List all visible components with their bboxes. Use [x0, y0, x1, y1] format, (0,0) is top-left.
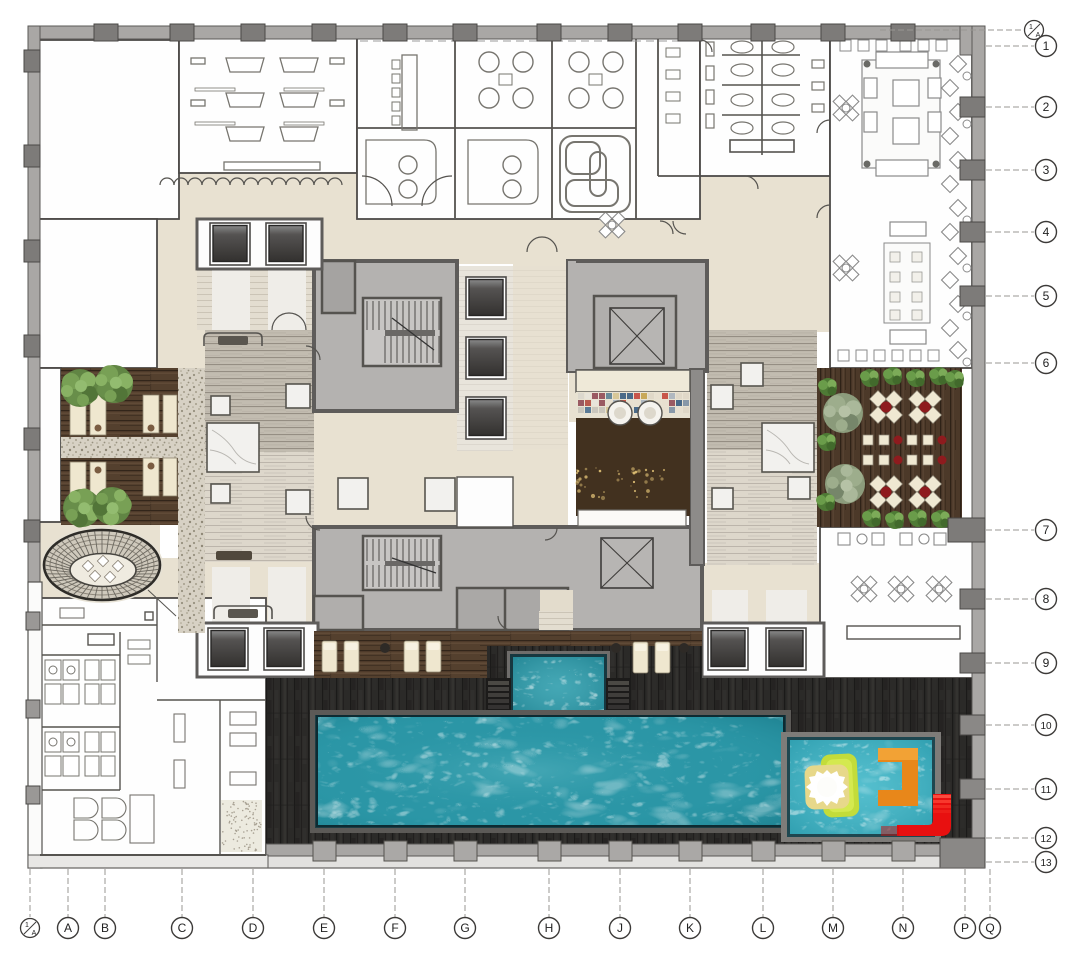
svg-text:1: 1: [1043, 39, 1050, 53]
svg-text:A: A: [32, 930, 37, 937]
svg-text:6: 6: [1043, 356, 1050, 370]
svg-text:A: A: [1036, 32, 1041, 39]
svg-text:10: 10: [1040, 721, 1052, 732]
svg-text:P: P: [961, 921, 969, 935]
svg-text:H: H: [545, 921, 554, 935]
svg-text:G: G: [460, 921, 469, 935]
svg-text:A: A: [64, 921, 72, 935]
svg-text:E: E: [320, 921, 328, 935]
svg-text:F: F: [391, 921, 398, 935]
svg-text:9: 9: [1043, 656, 1050, 670]
svg-text:3: 3: [1043, 163, 1050, 177]
svg-text:Q: Q: [985, 921, 994, 935]
svg-text:5: 5: [1043, 289, 1050, 303]
svg-text:1: 1: [1029, 24, 1033, 31]
svg-text:2: 2: [1043, 100, 1050, 114]
svg-text:7: 7: [1043, 523, 1050, 537]
svg-text:K: K: [686, 921, 694, 935]
svg-text:B: B: [101, 921, 109, 935]
svg-text:M: M: [828, 921, 838, 935]
svg-text:11: 11: [1041, 785, 1052, 796]
svg-text:D: D: [249, 921, 258, 935]
svg-text:8: 8: [1043, 592, 1050, 606]
svg-text:13: 13: [1040, 858, 1052, 869]
svg-text:1: 1: [25, 922, 29, 929]
svg-text:L: L: [760, 921, 767, 935]
svg-text:4: 4: [1043, 225, 1050, 239]
svg-text:J: J: [617, 921, 623, 935]
svg-text:N: N: [899, 921, 908, 935]
svg-text:12: 12: [1040, 834, 1052, 845]
svg-text:C: C: [178, 921, 187, 935]
